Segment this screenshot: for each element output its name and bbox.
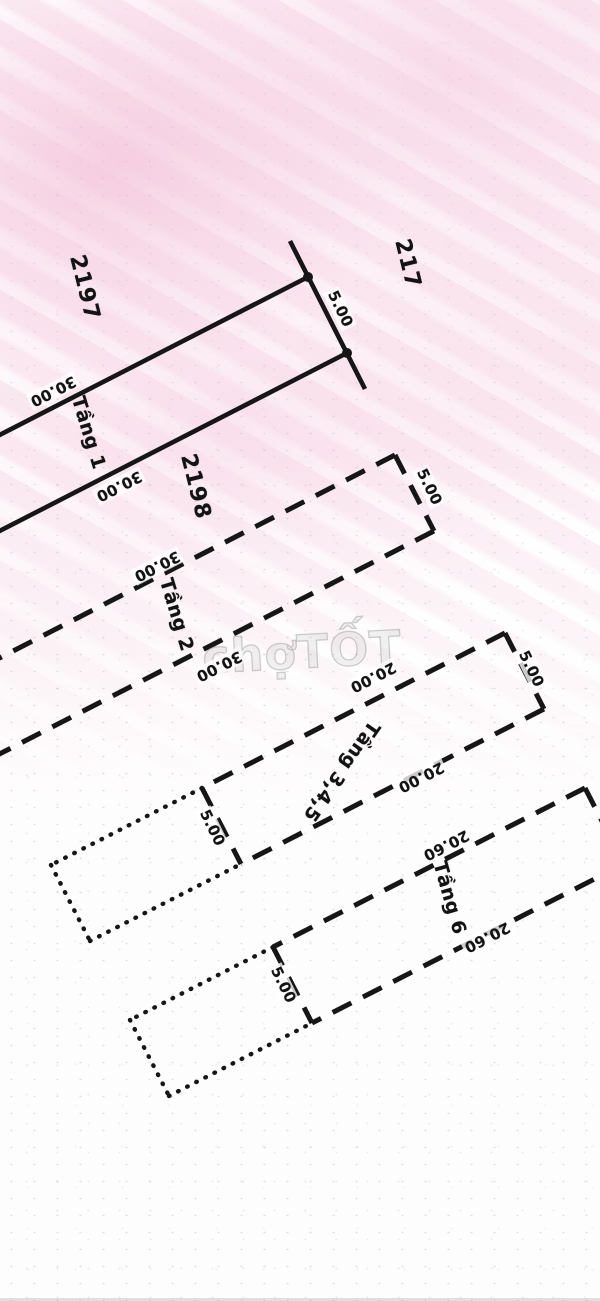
floor6-extension-bottom-dotted xyxy=(169,1023,312,1096)
floor6-extension-left-dotted xyxy=(130,1020,169,1096)
floor345-extension-bottom-dotted xyxy=(90,864,241,941)
floor6-right-boundary xyxy=(585,788,600,864)
floor6-extension-top-dotted xyxy=(130,947,273,1020)
floor345-extension-top-dotted xyxy=(51,788,202,865)
floor1-corner-marker-bottom xyxy=(342,348,352,358)
floor345-extension-left-dotted xyxy=(51,865,90,941)
floor1-corner-marker-top xyxy=(303,272,313,282)
floor345-bottom-boundary xyxy=(241,709,544,864)
scanned-floor-plan-sketch: chợTỐT 2197 217 2198 Tầng 1 5.00 30.00 3… xyxy=(0,0,600,1301)
floor1-top-boundary xyxy=(0,277,308,445)
